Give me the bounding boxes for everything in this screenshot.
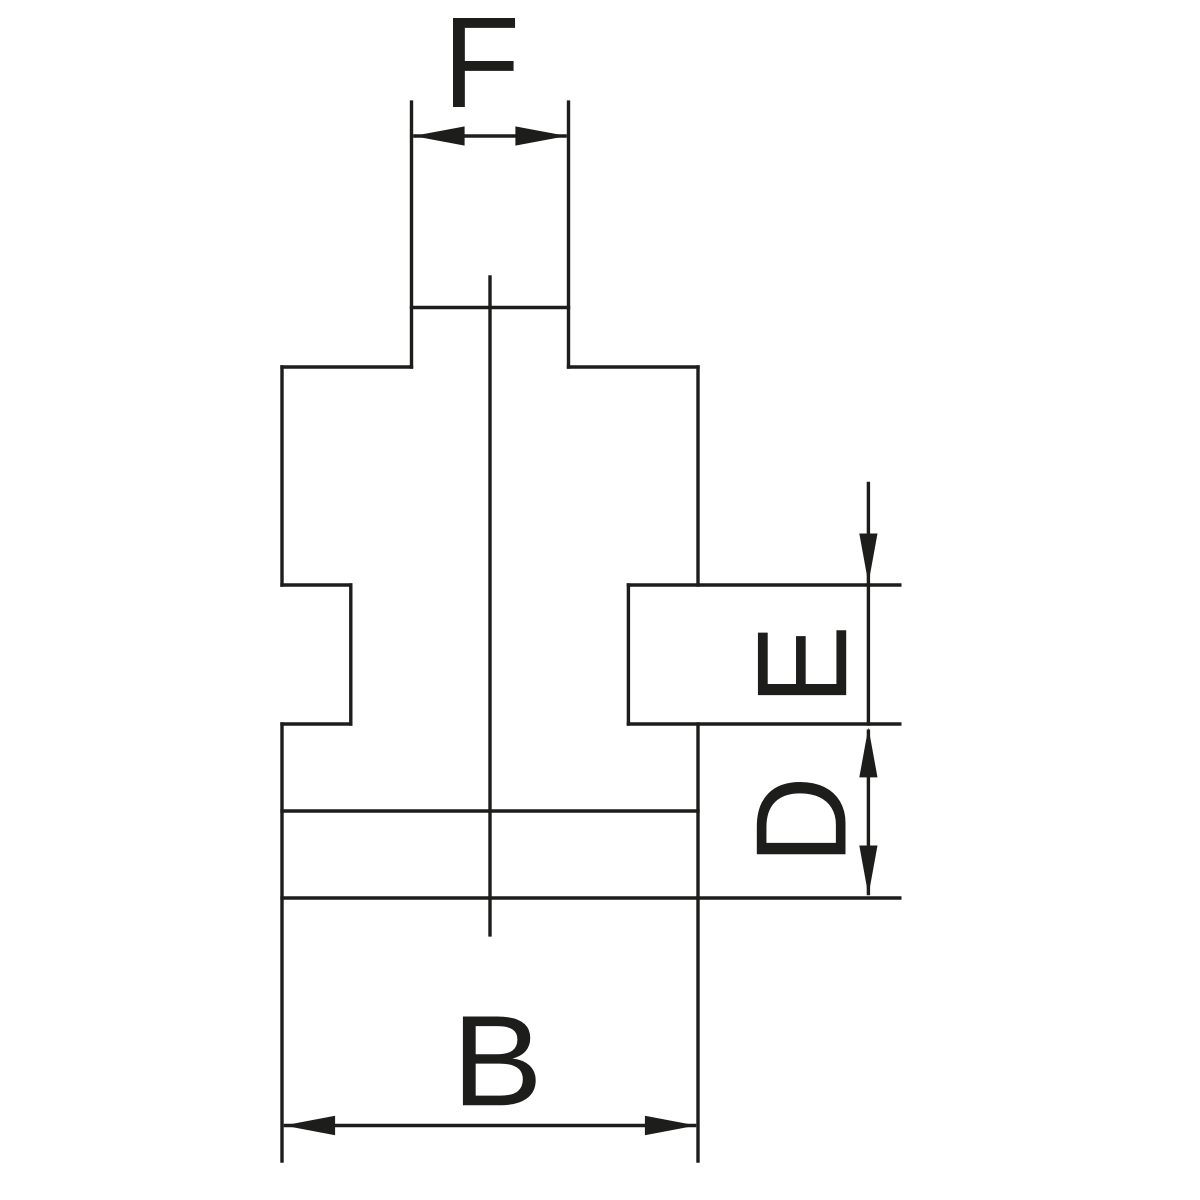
- svg-text:D: D: [728, 776, 873, 864]
- svg-text:E: E: [731, 625, 874, 705]
- svg-text:B: B: [452, 990, 543, 1134]
- svg-text:F: F: [443, 0, 521, 135]
